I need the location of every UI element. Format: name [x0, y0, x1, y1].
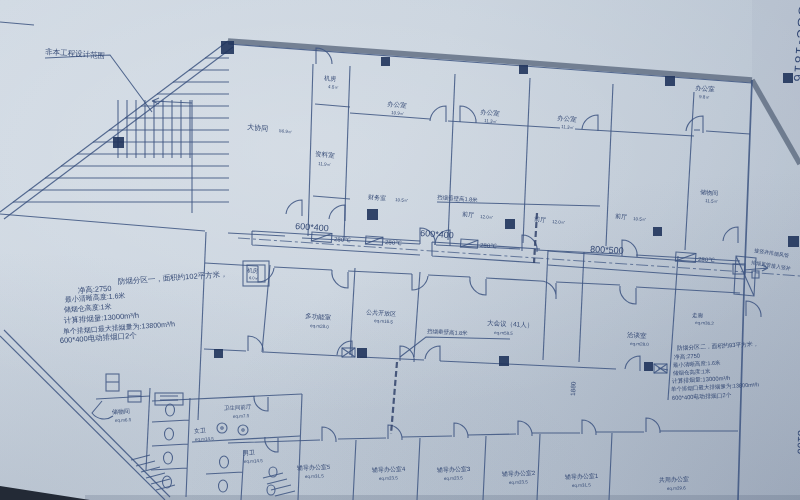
room-area: eq.m14.5	[244, 458, 263, 464]
room-area: 9.8㎡	[699, 94, 710, 100]
smoke-zone-2-block: 防烟分区二，面积约93平方米， 净高:2750 最小清晰高度:1.6米 储烟仓高…	[671, 340, 760, 402]
room-area: 11.3㎡	[561, 124, 574, 130]
room-area: 10.5㎡	[633, 216, 647, 222]
room-name: 储物间	[700, 188, 719, 197]
room-area: 10.9㎡	[391, 110, 405, 116]
room-name: 办公室	[387, 100, 408, 109]
room-area: eq.m14.5	[195, 436, 214, 442]
shaft-note: 排烟风管接入竖井	[750, 259, 792, 272]
svg-text:最小清晰高度:1.6米: 最小清晰高度:1.6米	[673, 359, 721, 369]
room-area: eq.m28.0	[630, 341, 649, 347]
room-name: 大协同	[247, 123, 269, 133]
room-area: 12.0㎡	[480, 214, 494, 220]
svg-text:防烟分区二，面积约93平方米，: 防烟分区二，面积约93平方米，	[677, 340, 759, 352]
room-name: 机房	[324, 74, 337, 82]
room-area: 11.5㎡	[705, 198, 718, 204]
fire-damper-1	[311, 232, 332, 242]
room-name: 共用办公室	[659, 475, 689, 484]
room-name: 男卫	[243, 448, 255, 457]
smoke-zone-boundary-2	[391, 362, 397, 434]
room-area: eq.m28.0	[310, 323, 330, 329]
room-area: eq.m23.5	[379, 475, 398, 481]
room-area: 56.9㎡	[279, 128, 293, 134]
room-area: 11.9㎡	[318, 161, 331, 167]
smoke-damper-x-1	[342, 348, 355, 357]
floor-plan-svg: 非本工程设计范围 大协同 56.9㎡ 机房 4.5㎡ 办公室 10.9㎡ 办公室…	[0, 0, 800, 500]
room-name: 辅导办公室1	[565, 472, 599, 481]
room-area: eq.m23.5	[509, 479, 528, 485]
room-name: 卫生间前厅	[224, 404, 252, 412]
room-name: 女卫	[194, 426, 206, 434]
room-area: eq.m6.5	[115, 417, 132, 423]
room-name: 辅导办公室3	[437, 465, 471, 474]
damper-temp-label: 280℃	[334, 236, 351, 243]
out-of-scope-label: 非本工程设计范围	[45, 47, 105, 60]
lower-diagonal-edge	[0, 330, 295, 500]
room-name: 储物间	[112, 407, 130, 416]
room-area: 4.5㎡	[328, 84, 339, 90]
shaft-note: 接竖井排烟风管	[754, 247, 790, 259]
duct-size-label: 600*400	[295, 221, 329, 233]
toilet-fixtures	[106, 374, 277, 500]
damper-temp-label: 280℃	[385, 239, 402, 246]
room-name: 前厅	[533, 215, 546, 223]
room-name: 机房	[247, 267, 259, 275]
room-area: 10.5㎡	[395, 197, 409, 203]
duct-size-label: 600*400	[420, 228, 454, 240]
room-name: 走廊	[692, 312, 704, 320]
svg-text:防烟分区一，面积约102平方米，: 防烟分区一，面积约102平方米，	[118, 269, 228, 286]
room-name: 辅导办公室2	[502, 469, 536, 478]
room-name: 公共开放区	[366, 308, 396, 318]
room-area: 12.0㎡	[552, 219, 566, 225]
room-name: 多功能室	[305, 312, 332, 322]
damper-temp-label: 280℃	[698, 256, 715, 263]
room-name: 辅导办公室5	[297, 463, 331, 472]
room-name: 资料室	[315, 150, 336, 159]
damper-temp-label: 280℃	[480, 242, 497, 249]
room-name: 洽谈室	[627, 331, 647, 340]
room-area: eq.m36.2	[695, 320, 714, 326]
duct-size-label: 800*500	[590, 244, 624, 256]
room-name: 前厅	[614, 212, 627, 220]
dim-1880: 1880	[569, 381, 577, 396]
interior-walls-bottom	[96, 388, 738, 500]
stairs-area	[0, 41, 233, 231]
room-name: 辅导办公室4	[372, 465, 406, 474]
svg-text:600*400电动排烟口2个: 600*400电动排烟口2个	[672, 392, 732, 402]
room-name: 办公室	[480, 108, 501, 117]
svg-text:净高:2750: 净高:2750	[674, 353, 700, 360]
room-area: eq.m31.5	[572, 482, 591, 488]
room-name: 前厅	[461, 210, 474, 218]
svg-text:最小清晰高度:1.6米: 最小清晰高度:1.6米	[65, 292, 126, 304]
room-name: 办公室	[557, 114, 578, 123]
smoke-damper-x-2	[654, 364, 667, 373]
room-area: eq.m7.5	[233, 413, 250, 419]
blueprint-photo: 非本工程设计范围 大协同 56.9㎡ 机房 4.5㎡ 办公室 10.9㎡ 办公室…	[0, 0, 800, 500]
room-name: 办公室	[695, 84, 715, 92]
smoke-curtain-label: 挡烟垂壁高1.8米	[427, 328, 468, 337]
room-area: eq.m29.6	[667, 485, 686, 491]
room-area: 6.0㎡	[249, 275, 259, 281]
interior-walls-middle	[198, 232, 678, 420]
room-area: eq.m23.5	[444, 475, 463, 481]
room-area: eq.m31.5	[305, 473, 324, 479]
room-area: eq.m16.5	[374, 318, 394, 324]
room-name: 财务室	[368, 193, 386, 201]
room-area: eq.m58.5	[494, 330, 513, 336]
dim-8100: 8100	[796, 430, 800, 455]
room-name: 大会议（41人）	[487, 319, 534, 329]
